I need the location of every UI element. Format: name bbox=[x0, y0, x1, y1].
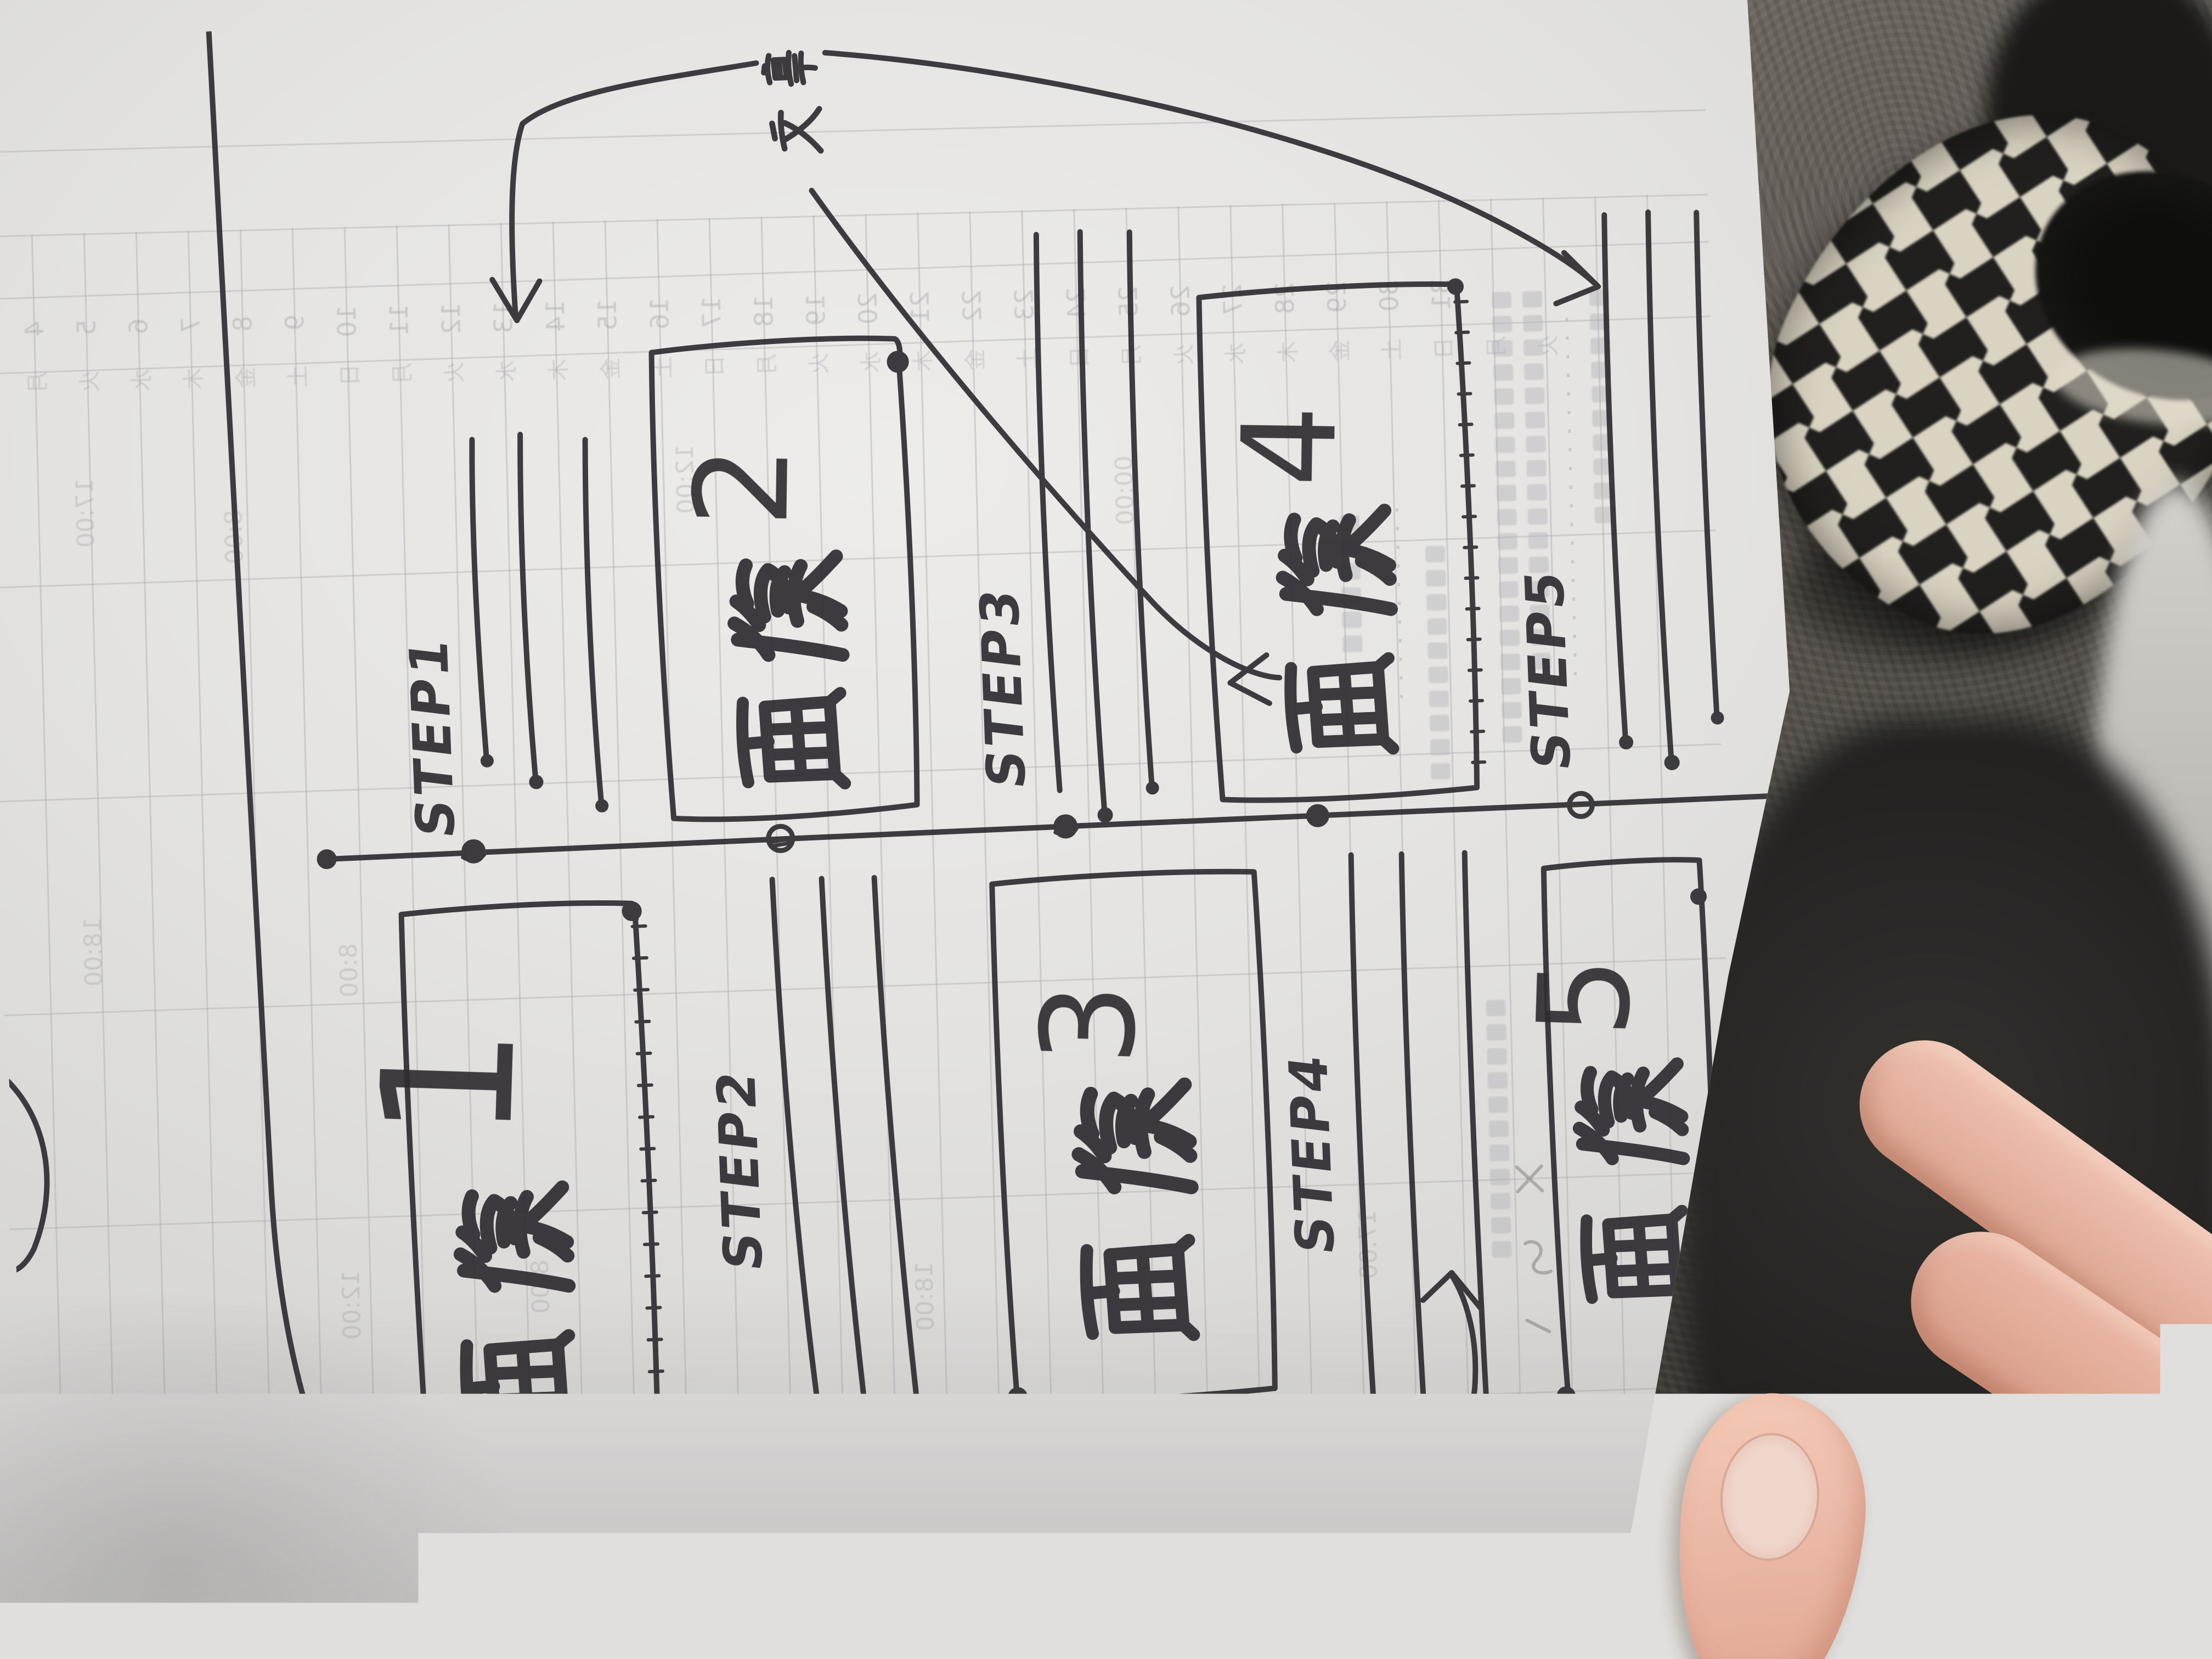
step-label-3: STEP3 bbox=[961, 529, 1045, 845]
step-label-2: STEP2 bbox=[698, 1012, 782, 1327]
step-label-5: STEP5 bbox=[1506, 511, 1590, 827]
text-lines-group-c bbox=[1601, 210, 1723, 769]
arrow-top-right bbox=[825, 24, 1599, 331]
image-number-2: 2 bbox=[667, 444, 818, 528]
image-number-4: 4 bbox=[1215, 404, 1365, 488]
photo-canvas: 4567891011121314151617181920212223242526… bbox=[0, 0, 2212, 1659]
text-lines-group-a bbox=[470, 432, 606, 814]
arrow-top-left bbox=[484, 63, 766, 321]
image-box-5-label bbox=[1577, 1064, 1689, 1303]
image-number-1: 1 bbox=[342, 1022, 556, 1144]
text-lines-group-d bbox=[1348, 850, 1498, 1520]
timeline-end-dot bbox=[319, 852, 334, 867]
pencil-scribbles bbox=[1517, 1166, 1554, 1333]
step-label-1: STEP1 bbox=[391, 579, 474, 894]
annotation-bunshou-top bbox=[763, 52, 821, 153]
image-number-5: 5 bbox=[1511, 954, 1660, 1039]
arrow-bottom-left bbox=[855, 1448, 1216, 1616]
arrowhead bbox=[855, 1460, 899, 1497]
timeline-node-scribble bbox=[771, 839, 791, 846]
annotation-bunshou-bottom bbox=[1228, 1482, 1294, 1601]
timeline-node bbox=[1308, 806, 1327, 825]
image-box-2-label bbox=[732, 556, 848, 787]
text-lines-group-e bbox=[772, 874, 928, 1465]
step-label-4: STEP4 bbox=[1270, 995, 1353, 1311]
arrow-bottom-right bbox=[1297, 1272, 1489, 1541]
image-box-4-label bbox=[1280, 510, 1397, 752]
text-lines-group-b bbox=[1032, 230, 1157, 822]
image-number-3: 3 bbox=[1013, 980, 1166, 1067]
image-box-1-label bbox=[458, 1187, 574, 1434]
image-box-3-label bbox=[1076, 1085, 1197, 1339]
